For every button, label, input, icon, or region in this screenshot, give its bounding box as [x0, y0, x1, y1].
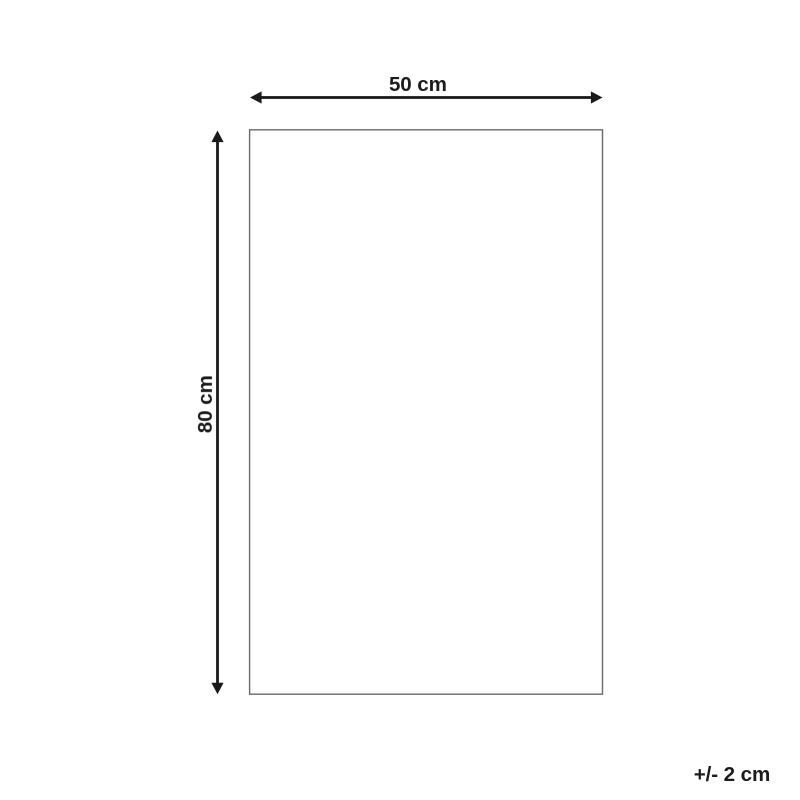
svg-text:50 cm: 50 cm	[389, 73, 447, 96]
svg-text:80 cm: 80 cm	[194, 375, 217, 433]
svg-text:+/- 2 cm: +/- 2 cm	[694, 763, 770, 786]
